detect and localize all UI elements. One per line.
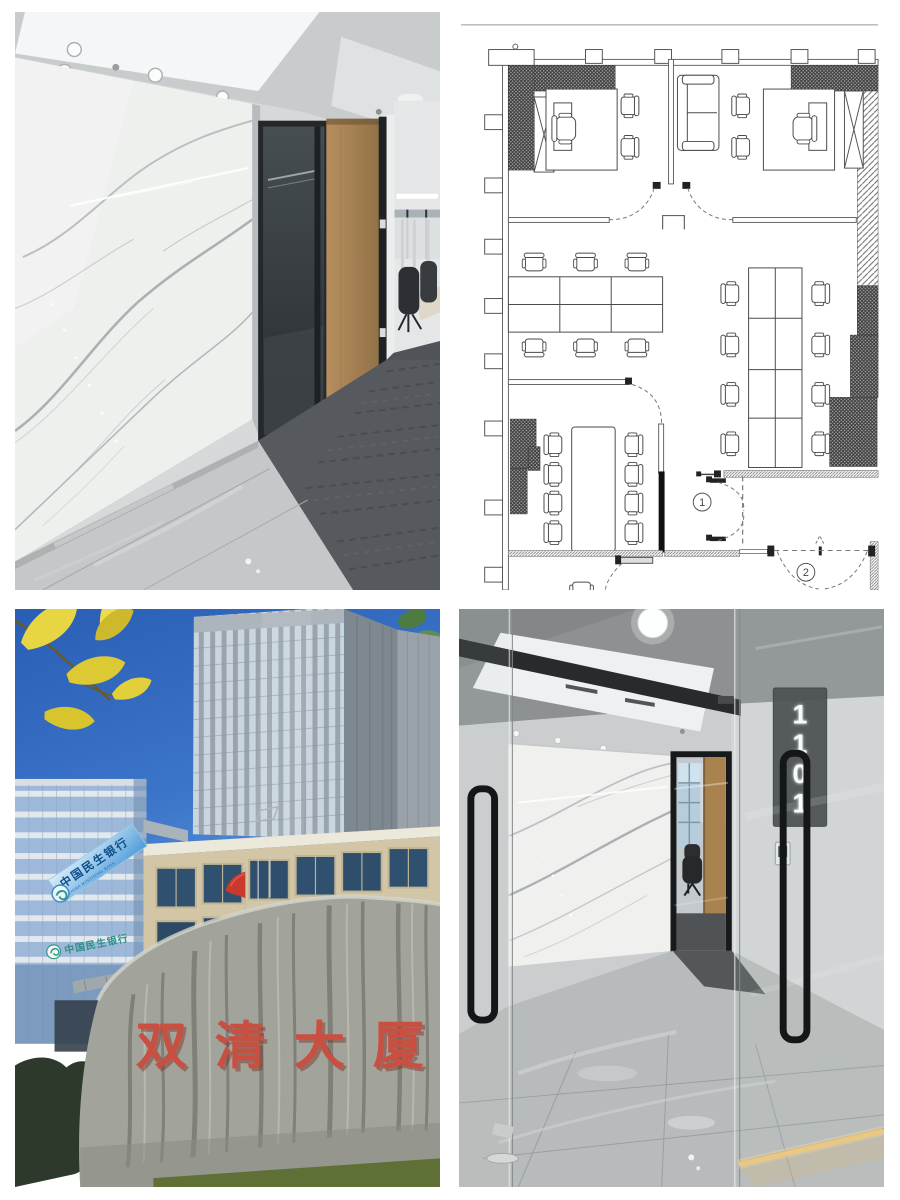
exec-chair [552,113,576,144]
photo-entrance-lobby[interactable]: 1 1 0 1 [459,609,884,1187]
door-hinge [625,378,632,385]
glass-pane [459,609,512,1187]
floor-spring-plate [487,1153,519,1163]
marble-feature-wall [508,743,672,966]
guest-chair [732,136,750,160]
interior-wall [508,380,629,385]
office-tower [193,609,440,839]
sofa [677,75,719,150]
office-chair [398,267,419,314]
office-doorway [671,751,732,957]
office-chair [420,261,437,302]
entrance-lobby-image: 1 1 0 1 [459,609,884,1187]
building-exterior-image: 中国民生银行 CHINA MINSHENG BANK 中国民生银行 [15,609,440,1187]
floor-plan-drawing[interactable]: 1 2 [459,12,884,590]
door-hinge-icon [380,328,386,337]
photo-office-interior[interactable] [15,12,440,590]
guest-chair [732,94,750,118]
ceiling-downlight [638,609,668,638]
wall-section [659,471,665,552]
sprinkler-icon [376,109,382,115]
workstation-cluster-left [508,253,662,357]
linear-light [397,194,439,199]
door-leaf [619,557,653,563]
office-interior-image [15,12,440,590]
guest-chair [621,94,639,118]
ceiling-downlight [148,68,162,82]
ceiling-downlight [513,730,519,736]
rock-inscription-text: 双清大厦 [136,1017,440,1075]
door-hinge [653,182,661,189]
photo-building-exterior[interactable]: 中国民生银行 CHINA MINSHENG BANK 中国民生银行 [15,609,440,1187]
partition-wall [669,59,674,183]
photo-collage-grid: 1 2 [0,0,900,1200]
floor-plan-svg: 1 2 [459,12,884,590]
door-marker-1: 1 [699,497,705,509]
ceiling-downlight [67,43,81,57]
glass-partition [258,121,329,441]
sprinkler-icon [112,64,119,71]
tower-side-face [344,609,397,839]
sprinkler-icon [680,729,685,734]
ceiling-downlight [555,737,561,743]
exec-chair [793,113,817,144]
guest-chair [621,136,639,160]
door-closer [718,696,734,704]
meeting-table [572,427,615,551]
carpet [676,913,725,951]
interior-wall [508,218,609,223]
door-hinge [682,182,690,189]
left-glass-door [459,609,518,1187]
right-glass-door [734,609,884,1187]
interior-wall [733,218,857,223]
door-marker-2: 2 [803,567,809,579]
door-hinge-icon [380,219,386,228]
